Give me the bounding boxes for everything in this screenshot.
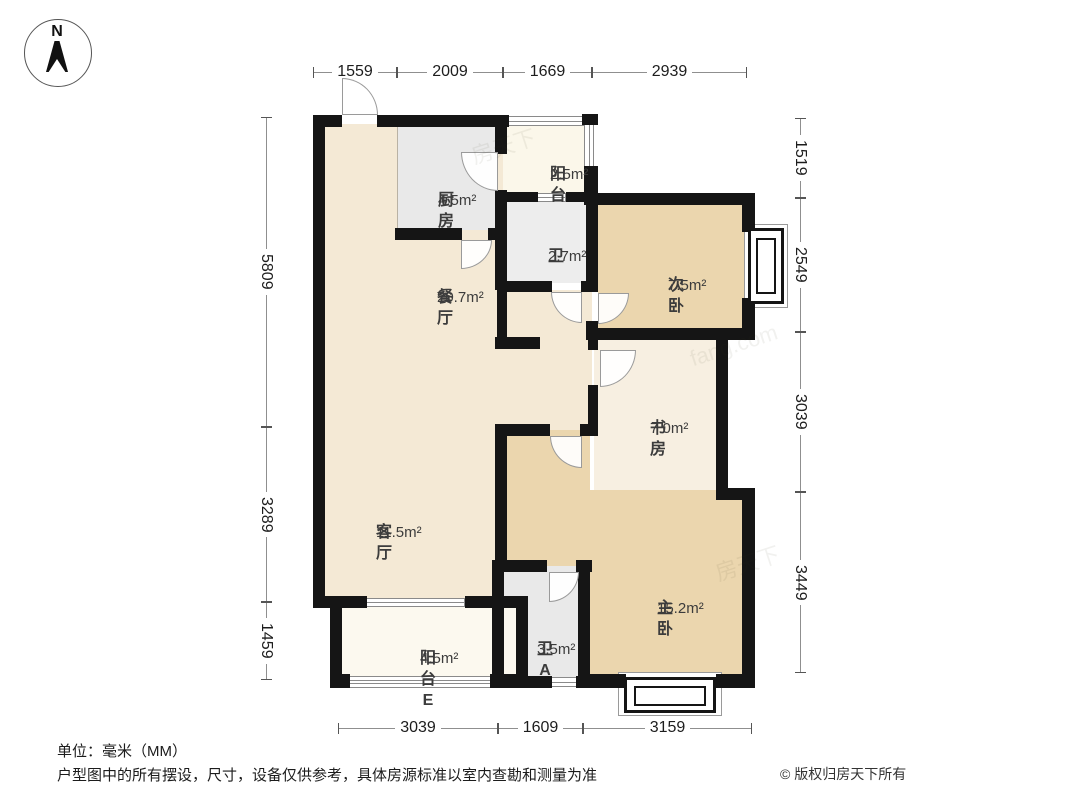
wall-segment xyxy=(495,124,507,154)
dimension-line xyxy=(593,72,647,73)
dimension-line xyxy=(800,435,801,491)
wall-segment xyxy=(503,192,538,202)
dimension-left-1: 3289 xyxy=(259,427,273,602)
dimension-value: 3449 xyxy=(791,560,809,606)
dimension-line xyxy=(473,72,502,73)
room-area-study: 7.0m² xyxy=(650,418,688,439)
wall-segment xyxy=(588,328,755,340)
dimension-left-2: 1459 xyxy=(259,602,273,680)
dimension-value: 3039 xyxy=(791,389,809,435)
dimension-line xyxy=(800,199,801,242)
north-arrow-notch xyxy=(48,59,66,73)
floorplan-page: N 餐厅20.7m²厨房4.5m²阳台2.5m²卫2.7m²次卧7.5m²书房7… xyxy=(0,0,1066,800)
dimension-line xyxy=(266,537,267,601)
dimension-line xyxy=(314,72,332,73)
dimension-bottom-0: 3039 xyxy=(338,721,498,735)
wall-segment xyxy=(330,674,350,688)
dimension-tick xyxy=(795,672,806,673)
dimension-line xyxy=(800,333,801,389)
dimension-line xyxy=(692,72,746,73)
dimension-value: 1559 xyxy=(332,65,378,79)
kitchen-divider-line xyxy=(397,126,398,229)
entry-door-arc xyxy=(342,78,378,115)
dimension-line xyxy=(800,288,801,331)
wall-segment xyxy=(586,193,755,205)
dimension-line xyxy=(266,295,267,426)
dimension-line xyxy=(504,72,525,73)
dimension-right-0: 1519 xyxy=(793,118,807,198)
dimension-value: 5809 xyxy=(257,249,275,295)
dimension-right-2: 3039 xyxy=(793,332,807,492)
wall-segment xyxy=(586,205,598,292)
wall-segment xyxy=(578,560,590,688)
wall-segment xyxy=(495,424,550,436)
wall-segment xyxy=(377,115,509,127)
dimension-value: 3039 xyxy=(395,721,441,735)
room-area-living: 11.5m² xyxy=(376,522,422,543)
wall-segment xyxy=(495,190,507,290)
wall-segment xyxy=(495,337,540,349)
room-bedroom_master-floor xyxy=(588,490,744,676)
master-bedroom-bay-window-glass xyxy=(634,686,706,706)
room-bath-floor xyxy=(503,197,586,283)
dimension-value: 2549 xyxy=(791,242,809,288)
wall-segment xyxy=(716,330,728,500)
dimension-line xyxy=(800,181,801,197)
disclaimer-note: 户型图中的所有摆设，尺寸，设备仅供参考，具体房源标准以室内查勘和测量为准 xyxy=(57,764,597,785)
dimension-top-1: 2009 xyxy=(397,65,503,79)
dimension-line xyxy=(563,728,582,729)
wall-segment xyxy=(492,560,504,688)
dimension-right-3: 3449 xyxy=(793,492,807,673)
dimension-bottom-1: 1609 xyxy=(498,721,583,735)
room-area-dining: 20.7m² xyxy=(437,287,484,308)
dimension-line xyxy=(378,72,396,73)
wall-segment xyxy=(566,192,590,202)
dimension-line xyxy=(499,728,518,729)
dimension-bottom-2: 3159 xyxy=(583,721,752,735)
dimension-line xyxy=(266,664,267,679)
wall-segment xyxy=(313,115,325,608)
wall-segment xyxy=(742,490,755,688)
room-area-bedroom_master: 15.2m² xyxy=(657,598,704,619)
dimension-line xyxy=(800,605,801,672)
wall-segment xyxy=(495,560,547,572)
dimension-line xyxy=(690,728,751,729)
room-area-balcony_top: 2.5m² xyxy=(550,164,588,185)
dimension-value: 1459 xyxy=(257,618,275,664)
room-area-balcony_e: 4.5m² xyxy=(420,648,458,669)
room-area-kitchen: 4.5m² xyxy=(438,190,476,211)
dimension-line xyxy=(584,728,645,729)
wall-segment xyxy=(503,281,552,292)
dimension-line xyxy=(266,118,267,249)
dimension-top-0: 1559 xyxy=(313,65,397,79)
dimension-tick xyxy=(746,67,747,78)
dimension-value: 1669 xyxy=(525,65,571,79)
room-area-bath: 2.7m² xyxy=(548,246,586,267)
dimension-top-3: 2939 xyxy=(592,65,747,79)
dimension-line xyxy=(441,728,497,729)
room-area-bedroom_second: 7.5m² xyxy=(668,275,706,296)
dimension-value: 3159 xyxy=(645,721,691,735)
dimension-value: 2009 xyxy=(427,65,473,79)
wall-segment xyxy=(488,228,507,240)
dimension-line xyxy=(800,493,801,560)
bath-a-window xyxy=(550,677,578,687)
dimension-top-2: 1669 xyxy=(503,65,592,79)
wall-segment xyxy=(742,298,755,340)
copyright-note: © 版权归房天下所有 xyxy=(780,764,906,784)
north-label: N xyxy=(49,23,65,41)
dimension-line xyxy=(266,428,267,492)
dimension-value: 2939 xyxy=(647,65,693,79)
unit-note: 单位：毫米（MM） xyxy=(57,740,187,761)
floorplan-drawing: 餐厅20.7m²厨房4.5m²阳台2.5m²卫2.7m²次卧7.5m²书房7.0… xyxy=(0,0,1066,800)
wall-segment xyxy=(588,332,598,350)
wall-segment xyxy=(582,114,598,125)
wall-segment xyxy=(578,674,626,688)
second-bedroom-bay-window-glass xyxy=(756,238,776,294)
wall-segment xyxy=(313,596,367,608)
dimension-value: 1609 xyxy=(518,721,564,735)
balcony-side-window xyxy=(584,124,594,168)
dimension-line xyxy=(800,119,801,135)
dimension-right-1: 2549 xyxy=(793,198,807,332)
dimension-tick xyxy=(261,679,272,680)
wall-segment xyxy=(495,424,507,572)
balcony-top-window xyxy=(507,116,584,126)
wall-segment xyxy=(516,608,528,680)
dimension-value: 3289 xyxy=(257,492,275,538)
dimension-left-0: 5809 xyxy=(259,117,273,427)
dimension-line xyxy=(266,603,267,618)
living-balcony-sill-window xyxy=(365,598,465,607)
room-area-bath_a: 3.5m² xyxy=(537,639,575,660)
dimension-tick xyxy=(751,723,752,734)
dimension-line xyxy=(339,728,395,729)
wall-segment xyxy=(580,424,598,436)
dimension-value: 1519 xyxy=(791,135,809,181)
dimension-line xyxy=(398,72,427,73)
compass: N xyxy=(24,19,90,85)
dimension-line xyxy=(570,72,591,73)
